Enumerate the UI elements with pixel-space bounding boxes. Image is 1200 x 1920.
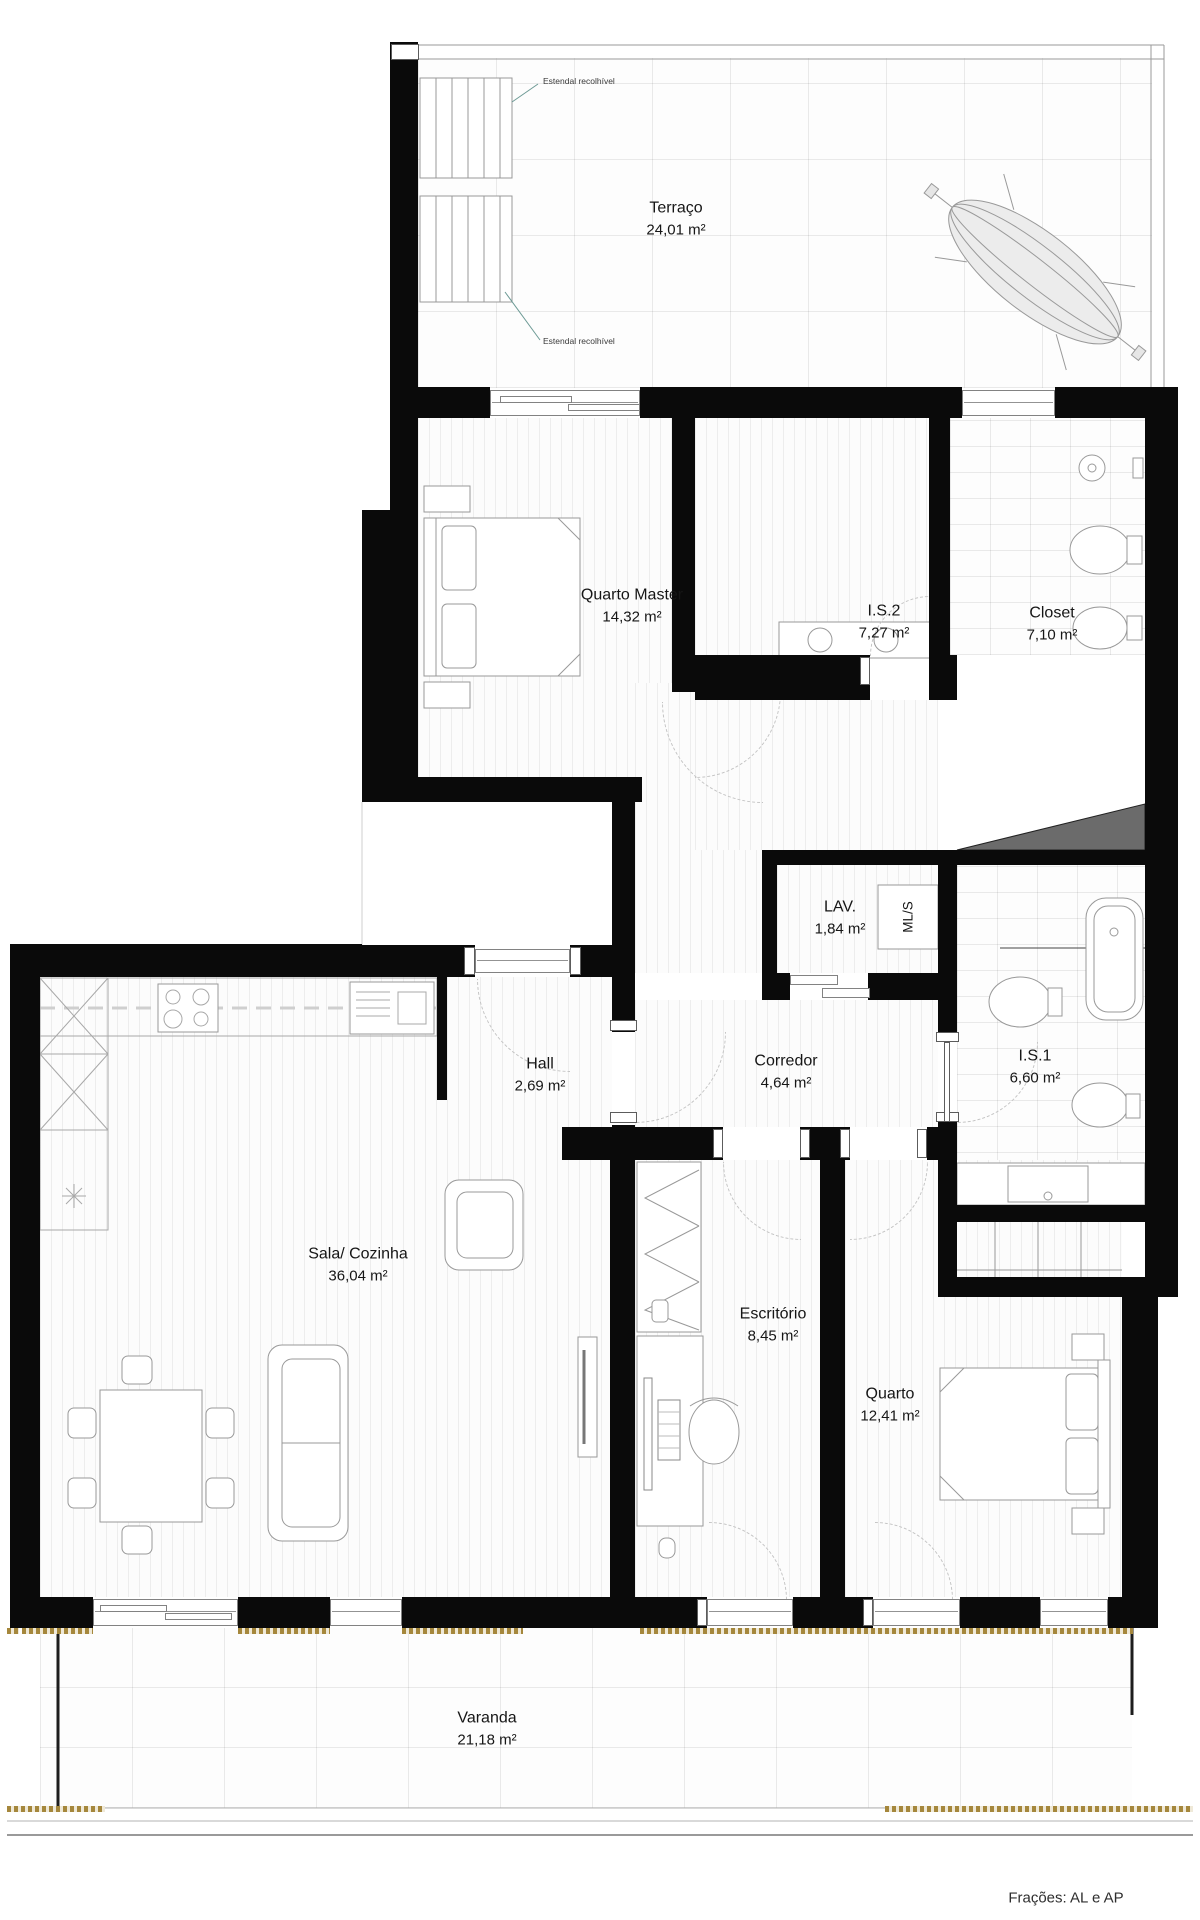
room-name: I.S.1 <box>1010 1045 1061 1068</box>
wall-segment <box>610 1160 635 1597</box>
door-jamb <box>800 1129 810 1158</box>
wall-segment <box>929 418 950 655</box>
wall-segment <box>929 655 957 700</box>
door-jamb <box>464 947 475 975</box>
wall-cap <box>391 44 419 60</box>
room-area: 6,60 m² <box>1010 1068 1061 1090</box>
wall-segment <box>938 865 957 1042</box>
room-label-corredor: Corredor 4,64 m² <box>754 1050 817 1095</box>
door-escritorio-varanda <box>707 1599 793 1626</box>
door-quarto-varanda <box>873 1599 960 1626</box>
annotation-fracoes: Frações: AL e AP <box>1008 1890 1123 1907</box>
window-sala-2 <box>330 1599 402 1626</box>
door-jamb <box>697 1599 707 1626</box>
floor-plan: Terraço 24,01 m² Quarto Master 14,32 m² … <box>0 0 1200 1920</box>
kitchen-counter-icon <box>40 978 437 1230</box>
desk-icon <box>637 1162 739 1558</box>
sofa-icon <box>268 1180 597 1541</box>
room-area: 21,18 m² <box>457 1730 516 1752</box>
threshold-strip <box>7 1628 19 1634</box>
terrace-parapet <box>418 45 1164 387</box>
door-jamb <box>863 1599 873 1626</box>
window-sash <box>568 404 640 411</box>
room-name: Sala/ Cozinha <box>308 1243 408 1266</box>
room-area: 2,69 m² <box>515 1076 566 1098</box>
room-name: Escritório <box>740 1303 807 1326</box>
door-jamb <box>570 947 581 975</box>
room-area: 24,01 m² <box>646 220 705 242</box>
wall-segment <box>390 387 490 418</box>
room-label-mls: ML/S <box>901 901 916 933</box>
room-name: Corredor <box>754 1050 817 1073</box>
wall-segment <box>762 850 1145 865</box>
wall-segment <box>793 1597 873 1628</box>
room-name: Varanda <box>457 1707 516 1730</box>
room-name: I.S.2 <box>859 600 910 623</box>
wall-segment <box>350 945 475 977</box>
wall-segment <box>952 1205 1178 1222</box>
bed-icon <box>940 1222 1122 1534</box>
hammock-icon <box>892 143 1178 402</box>
wall-segment <box>762 973 790 1000</box>
window-closet <box>962 390 1055 416</box>
room-label-is1: I.S.1 6,60 m² <box>1010 1045 1061 1090</box>
wall-segment <box>1108 1597 1158 1628</box>
door-jamb <box>936 1032 959 1042</box>
wall-segment <box>952 1277 1178 1297</box>
threshold-strip <box>238 1628 330 1634</box>
room-label-quarto-master: Quarto Master 14,32 m² <box>581 584 683 629</box>
dining-table-icon <box>68 1356 234 1554</box>
wall-segment <box>390 777 642 802</box>
door-jamb <box>840 1129 850 1158</box>
door-jamb <box>917 1129 927 1158</box>
wall-segment <box>612 777 635 1032</box>
room-area: 36,04 m² <box>308 1266 408 1288</box>
door-jamb <box>610 1112 637 1123</box>
room-name: LAV. <box>815 896 866 919</box>
window-sash <box>165 1613 232 1620</box>
room-area: 12,41 m² <box>860 1406 919 1428</box>
room-label-escritorio: Escritório 8,45 m² <box>740 1303 807 1348</box>
wall-segment <box>562 1127 723 1160</box>
threshold-strip <box>885 1806 1193 1812</box>
wall-segment <box>10 1597 93 1628</box>
room-label-is2: I.S.2 7,27 m² <box>859 600 910 645</box>
entrance-door-threshold <box>475 949 570 973</box>
wall-segment <box>1145 387 1178 1292</box>
wall-segment <box>640 387 962 418</box>
room-name: Hall <box>515 1053 566 1076</box>
room-area: 14,32 m² <box>581 607 683 629</box>
window-quarto <box>1040 1599 1108 1626</box>
wall-segment <box>10 944 362 977</box>
threshold-strip <box>22 1628 93 1634</box>
room-label-closet: Closet 7,10 m² <box>1027 602 1078 647</box>
annotation-estendal-top: Estendal recolhível <box>543 76 615 86</box>
wall-segment <box>362 510 418 802</box>
room-area: 7,10 m² <box>1027 625 1078 647</box>
wall-segment <box>960 1597 1040 1628</box>
room-name: Quarto <box>860 1383 919 1406</box>
window-quarto-master <box>490 390 640 416</box>
master-bed-icon <box>424 486 580 708</box>
wall-segment <box>437 977 447 1100</box>
wall-segment <box>402 1597 707 1628</box>
threshold-strip <box>640 1628 1133 1634</box>
wall-segment <box>238 1597 330 1628</box>
window-sash <box>500 396 572 403</box>
door-leaf <box>944 1042 950 1122</box>
wall-segment <box>695 655 870 700</box>
drying-rack-icon <box>420 78 540 340</box>
room-name: Terraço <box>646 197 705 220</box>
door-jamb <box>713 1129 723 1158</box>
room-label-terraco: Terraço 24,01 m² <box>646 197 705 242</box>
room-label-quarto: Quarto 12,41 m² <box>860 1383 919 1428</box>
room-area: 4,64 m² <box>754 1073 817 1095</box>
room-area: 8,45 m² <box>740 1326 807 1348</box>
threshold-strip <box>7 1806 105 1812</box>
room-area: 7,27 m² <box>859 623 910 645</box>
room-label-varanda: Varanda 21,18 m² <box>457 1707 516 1752</box>
room-label-sala: Sala/ Cozinha 36,04 m² <box>308 1243 408 1288</box>
duct-wedge <box>957 804 1145 850</box>
door-jamb <box>610 1020 637 1031</box>
room-label-lav: LAV. 1,84 m² <box>815 896 866 941</box>
wall-segment <box>10 944 40 1628</box>
wall-segment <box>868 973 938 1000</box>
closet-bathroom-fixtures <box>779 455 1143 658</box>
wall-segment <box>820 1160 845 1597</box>
room-name: Closet <box>1027 602 1078 625</box>
room-name: Quarto Master <box>581 584 683 607</box>
annotation-estendal-bottom: Estendal recolhível <box>543 336 615 346</box>
wall-segment <box>762 865 777 973</box>
wall-segment <box>1122 1292 1158 1628</box>
sliding-door-lav <box>822 988 870 998</box>
window-sash <box>100 1605 167 1612</box>
wall-segment <box>390 42 418 512</box>
wall-segment <box>672 418 695 692</box>
threshold-strip <box>402 1628 523 1634</box>
room-area: 1,84 m² <box>815 919 866 941</box>
door-jamb <box>860 657 870 685</box>
sliding-door-lav <box>790 975 838 985</box>
room-label-hall: Hall 2,69 m² <box>515 1053 566 1098</box>
